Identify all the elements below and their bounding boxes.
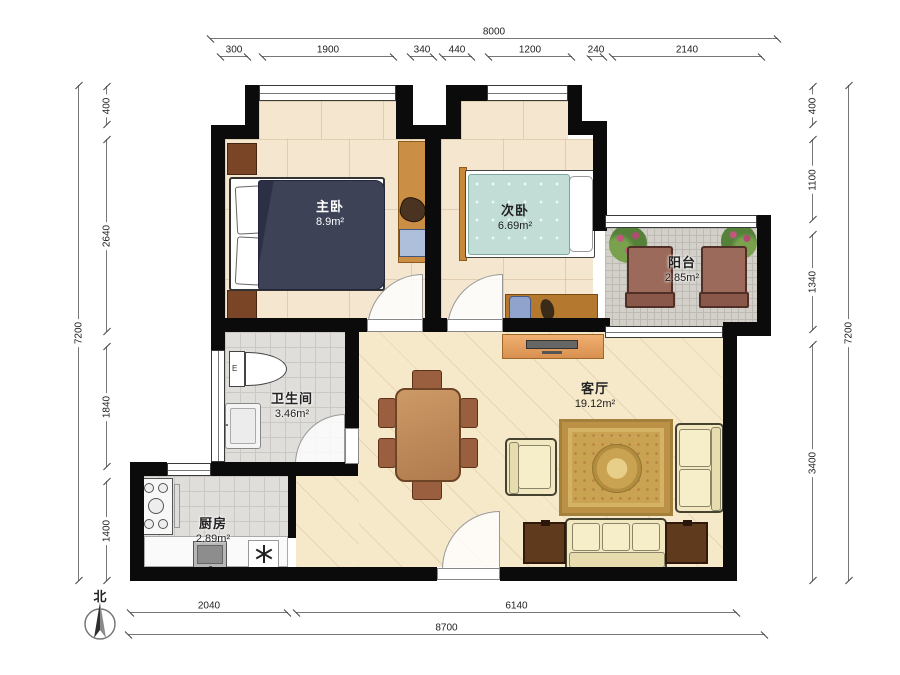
window bbox=[167, 463, 211, 476]
second-bedroom-floor-window-strip bbox=[461, 101, 568, 139]
kitchen-sink bbox=[193, 541, 227, 568]
armchair bbox=[505, 438, 557, 496]
toilet-tank: E bbox=[229, 351, 245, 387]
wall bbox=[425, 139, 441, 318]
window bbox=[259, 85, 396, 101]
room-label-master: 主卧 8.9m² bbox=[285, 196, 375, 228]
dining-chair bbox=[460, 398, 478, 428]
wall bbox=[757, 215, 771, 336]
balcony-sliding-door bbox=[605, 326, 723, 338]
side-table bbox=[523, 522, 566, 564]
dining-chair bbox=[412, 480, 442, 500]
wall bbox=[245, 85, 259, 139]
floor-plan: E bbox=[0, 0, 900, 675]
dim-left-seg: 1840 bbox=[106, 346, 107, 467]
rug bbox=[559, 419, 673, 516]
dim-right-seg: 1100 bbox=[812, 139, 813, 220]
rug-medallion bbox=[592, 444, 642, 493]
dim-top-seg: 440 bbox=[442, 56, 472, 57]
wall bbox=[345, 332, 359, 428]
wall bbox=[423, 318, 447, 332]
dining-chair bbox=[378, 398, 396, 428]
dim-left-seg: 400 bbox=[106, 86, 107, 125]
wall bbox=[211, 318, 367, 332]
wall bbox=[723, 322, 737, 581]
dim-top-seg: 340 bbox=[410, 56, 434, 57]
wall bbox=[130, 567, 437, 581]
dim-top-seg: 1900 bbox=[262, 56, 394, 57]
dim-bottom-total: 8700 bbox=[128, 634, 765, 635]
printer bbox=[399, 229, 427, 257]
master-bedroom-floor-window-strip bbox=[259, 101, 396, 139]
north-compass-icon bbox=[80, 598, 120, 644]
tv bbox=[526, 340, 578, 349]
tv-base bbox=[542, 351, 562, 354]
wall bbox=[500, 567, 737, 581]
bathroom-door-leaf bbox=[345, 428, 359, 464]
wall bbox=[288, 476, 296, 538]
dim-top-total: 8000 bbox=[210, 38, 778, 39]
dim-left-seg: 2640 bbox=[106, 139, 107, 332]
window bbox=[605, 215, 757, 228]
dining-table bbox=[395, 388, 461, 482]
side-table bbox=[665, 522, 708, 564]
master-door-leaf bbox=[367, 319, 423, 332]
nightstand bbox=[227, 143, 257, 175]
dim-bottom-seg: 2040 bbox=[130, 612, 288, 613]
second-bedroom-door-leaf bbox=[447, 319, 503, 332]
dining-chair bbox=[412, 370, 442, 390]
window bbox=[211, 350, 225, 462]
dining-chair bbox=[460, 438, 478, 468]
window bbox=[487, 85, 568, 101]
dim-right-total: 7200 bbox=[848, 85, 849, 581]
dining-chair bbox=[378, 438, 396, 468]
wall bbox=[130, 462, 144, 581]
wall bbox=[503, 318, 610, 332]
dim-right-seg: 1340 bbox=[812, 234, 813, 330]
master-bed bbox=[229, 177, 385, 291]
dim-right-seg: 400 bbox=[812, 86, 813, 125]
dim-top-seg: 1200 bbox=[488, 56, 572, 57]
dim-bottom-seg: 6140 bbox=[296, 612, 737, 613]
sofa-two-seat bbox=[675, 423, 724, 513]
dim-top-seg: 240 bbox=[588, 56, 604, 57]
room-label-balcony: 阳台 2.85m² bbox=[637, 252, 727, 284]
wall bbox=[446, 85, 491, 101]
dim-top-seg: 300 bbox=[220, 56, 248, 57]
toilet-mark: E bbox=[232, 364, 237, 373]
room-label-living: 客厅 19.12m² bbox=[550, 378, 640, 410]
dim-right-seg: 3400 bbox=[812, 344, 813, 581]
entrance-door-leaf bbox=[437, 568, 500, 580]
wall bbox=[211, 462, 358, 476]
dim-left-seg: 1400 bbox=[106, 481, 107, 581]
room-label-bathroom: 卫生间 3.46m² bbox=[247, 388, 337, 420]
wall bbox=[211, 125, 225, 350]
pillow bbox=[569, 176, 593, 252]
sofa-three-seat bbox=[565, 518, 667, 572]
living-room-floor-ext bbox=[296, 462, 359, 567]
dim-left-total: 7200 bbox=[78, 85, 79, 581]
room-label-kitchen: 厨房 2.89m² bbox=[168, 513, 258, 545]
room-label-second: 次卧 6.69m² bbox=[470, 200, 560, 232]
dim-top-seg: 2140 bbox=[612, 56, 762, 57]
